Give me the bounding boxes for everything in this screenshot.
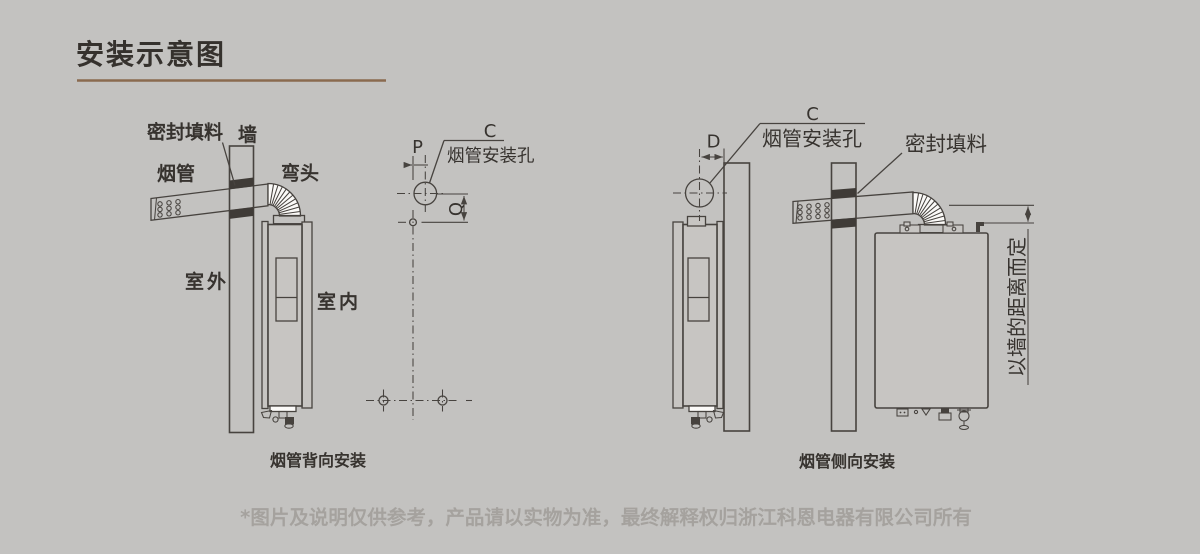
dim-q-label: Q — [446, 202, 467, 216]
seal-band-bottom — [230, 207, 254, 219]
page-title: 安装示意图 — [76, 38, 226, 71]
label-flue-hole-mid: 烟管安装孔 — [447, 147, 535, 167]
label-flue-hole-right: 烟管安装孔 — [762, 127, 862, 151]
label-seal-left: 密封填料 — [147, 121, 223, 144]
label-indoor: 室内 — [317, 290, 361, 313]
wall-front-view — [832, 163, 857, 431]
label-elbow: 弯头 — [281, 162, 319, 185]
c-leader-mid — [430, 141, 445, 184]
wall-side-view — [724, 163, 750, 431]
installation-diagram-page: 安装示意图 — [0, 0, 1200, 554]
pipe-end-cap — [155, 198, 157, 220]
footer-disclaimer: *图片及说明仅供参考，产品请以实物为准，最终解释权归浙江科恩电器有限公司所有 — [240, 506, 972, 529]
side-install-side-view: D C 烟管安装孔 — [673, 104, 865, 428]
label-seal-right: 密封填料 — [905, 132, 987, 156]
dim-p-label: P — [412, 137, 423, 158]
elbow-fitting — [268, 184, 305, 224]
caption-side-install: 烟管侧向安装 — [799, 452, 895, 471]
dim-c-label-mid: C — [484, 121, 497, 142]
side-install-front-view: 密封填料 以墙的距离而定 烟管侧向安装 — [793, 132, 1034, 471]
brick-walls — [230, 146, 857, 433]
water-heater-side-view — [262, 222, 313, 429]
distance-note: 以墙的距离而定 — [1005, 237, 1029, 377]
back-install-diagram: 密封填料 墙 烟管 弯头 室外 室内 烟管背向安装 — [147, 121, 366, 471]
heater-top-connector — [688, 217, 706, 227]
seal-leader-right — [858, 153, 903, 194]
pipe-intake-holes-side — [798, 203, 829, 220]
label-flue-pipe: 烟管 — [157, 162, 195, 185]
label-wall: 墙 — [238, 123, 257, 146]
diagram-canvas: 安装示意图 — [0, 0, 1200, 554]
water-heater-front-view — [875, 222, 988, 430]
label-outdoor: 室外 — [185, 270, 229, 293]
hole-layout-diagram: C 烟管安装孔 P Q — [366, 121, 535, 420]
pipe-intake-holes — [158, 200, 180, 218]
caption-back-install: 烟管背向安装 — [270, 451, 366, 470]
dim-c-label-right: C — [806, 104, 819, 125]
dim-d-label: D — [707, 132, 721, 153]
